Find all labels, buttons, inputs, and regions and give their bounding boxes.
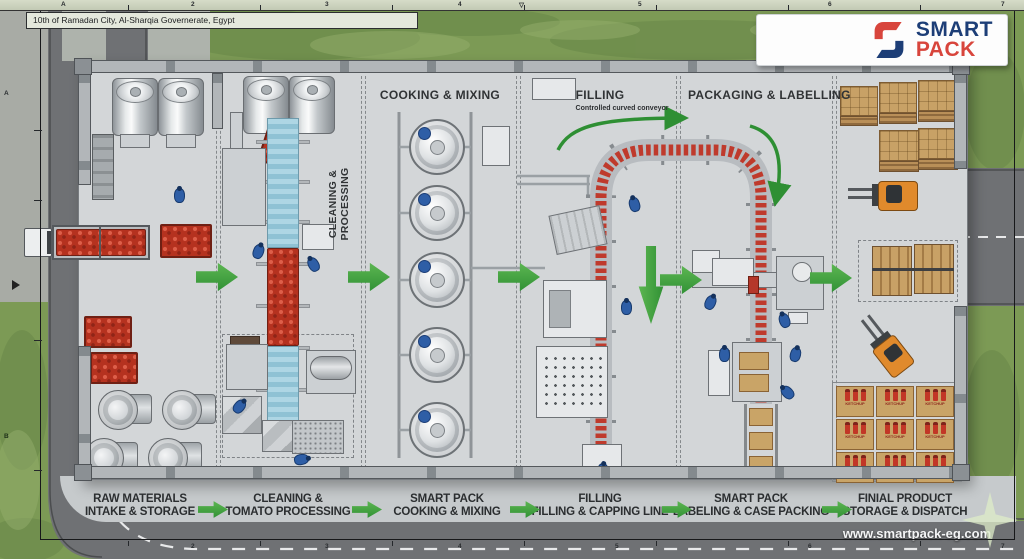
stage-line: TOMATO PROCESSING bbox=[208, 506, 368, 519]
truck-tomato-load bbox=[56, 229, 146, 256]
control-panel bbox=[482, 126, 510, 166]
ketchup-carton: KETCHUP bbox=[916, 386, 954, 417]
case-box bbox=[749, 432, 773, 450]
stage-line: COOKING & MIXING bbox=[372, 506, 522, 519]
stage-line: STORAGE & DISPATCH bbox=[827, 506, 983, 519]
ruler-tick bbox=[392, 5, 393, 10]
control-cabinet bbox=[92, 134, 114, 200]
ruler-tick bbox=[392, 541, 393, 546]
tomato-flow bbox=[267, 248, 299, 346]
logo-wordmark: SMART PACK bbox=[916, 20, 993, 60]
ruler-tick bbox=[260, 5, 261, 10]
address-plate: 10th of Ramadan City, Al-Sharqia Governe… bbox=[26, 12, 418, 29]
case-box bbox=[739, 374, 769, 392]
stage-line: INTAKE & STORAGE bbox=[65, 506, 215, 519]
ruler-label: 5 bbox=[638, 1, 642, 8]
building-wall-right bbox=[954, 73, 967, 169]
stage-line: FILLING & CAPPING LINE bbox=[515, 506, 685, 519]
entry-arrow-icon bbox=[12, 280, 20, 290]
corner-pillar bbox=[74, 58, 92, 75]
forklift-fork bbox=[848, 188, 874, 191]
trailer-divider bbox=[99, 227, 101, 258]
building-wall-right bbox=[954, 306, 967, 466]
mesh-machine bbox=[292, 420, 344, 454]
hopper-machine bbox=[226, 344, 268, 390]
storage-tank bbox=[112, 78, 158, 136]
pallet-strap bbox=[872, 268, 954, 271]
smartpack-logo-icon bbox=[871, 19, 907, 61]
labeler-foot bbox=[788, 312, 808, 324]
ruler-label: 6 bbox=[828, 1, 832, 8]
ruler-tick bbox=[524, 5, 525, 10]
building-wall-bottom bbox=[78, 466, 968, 479]
ketchup-carton: KETCHUP bbox=[876, 419, 914, 450]
filler-panel bbox=[549, 290, 571, 328]
pallet-stack bbox=[879, 130, 919, 176]
ruler-marker: ▽ bbox=[519, 1, 524, 9]
ruler-label: 6 bbox=[808, 543, 812, 550]
tomato-bin bbox=[84, 316, 132, 348]
corner-pillar bbox=[952, 464, 970, 481]
tank-stand bbox=[166, 134, 196, 148]
ruler-tick bbox=[656, 5, 657, 10]
website-url: www.smartpack-eg.com bbox=[832, 526, 1002, 541]
stage-label: FILLINGFILLING & CAPPING LINE bbox=[515, 493, 685, 518]
ketchup-carton: KETCHUP bbox=[916, 419, 954, 450]
stage-line: SMART PACK bbox=[661, 493, 841, 506]
cleaning-label-line2: PROCESSING bbox=[339, 144, 351, 264]
forklift-cab bbox=[886, 185, 902, 203]
cooking-kettle bbox=[409, 402, 465, 458]
ruler-label: 5 bbox=[615, 543, 619, 550]
cabinet-buttons bbox=[542, 354, 602, 410]
conveyor-annotation: Controlled curved conveyor bbox=[552, 105, 692, 112]
zone-label-cooking: COOKING & MIXING bbox=[370, 88, 510, 102]
cooking-kettle bbox=[409, 327, 465, 383]
stage-line: CLEANING & bbox=[208, 493, 368, 506]
cooking-kettle bbox=[409, 252, 465, 308]
stage-label: SMART PACKCOOKING & MIXING bbox=[372, 493, 522, 518]
ruler-tick bbox=[34, 470, 42, 471]
horizontal-tank bbox=[98, 390, 138, 430]
ruler-label: 3 bbox=[325, 1, 329, 8]
ruler-label: 2 bbox=[191, 1, 195, 8]
ruler-label: 4 bbox=[458, 1, 462, 8]
ruler-tick bbox=[788, 5, 789, 10]
ruler-tick bbox=[34, 130, 42, 131]
ruler-label: A bbox=[4, 90, 9, 97]
tomato-bin bbox=[90, 352, 138, 384]
truck-windshield bbox=[47, 231, 51, 254]
ruler-tick bbox=[920, 5, 921, 10]
logo-card: SMART PACK bbox=[756, 14, 1008, 66]
ruler-tick bbox=[34, 340, 42, 341]
stage-line: RAW MATERIALS bbox=[65, 493, 215, 506]
ruler-label: B bbox=[4, 433, 9, 440]
case-box bbox=[749, 408, 773, 426]
ruler-tick bbox=[34, 200, 42, 201]
ruler-tick bbox=[260, 541, 261, 546]
cooking-kettle bbox=[409, 185, 465, 241]
stage-label: SMART PACKLABELING & CASE PACKING bbox=[661, 493, 841, 518]
ketchup-carton: KETCHUP bbox=[836, 386, 874, 417]
ruler-label: 7 bbox=[1001, 1, 1005, 8]
logo-word-pack: PACK bbox=[916, 40, 993, 60]
stage-line: SMART PACK bbox=[372, 493, 522, 506]
labeler-reel bbox=[792, 262, 812, 282]
ketchup-carton: KETCHUP bbox=[836, 419, 874, 450]
worker bbox=[174, 188, 185, 203]
labeler-red-unit bbox=[748, 276, 759, 294]
ruler-label: 7 bbox=[1001, 543, 1005, 550]
forklift-fork bbox=[848, 196, 874, 199]
case-box bbox=[739, 352, 769, 370]
factory-layout-illustration: KETCHUP KETCHUP KETCHUP KETCHUP KETCHUP … bbox=[0, 0, 1024, 559]
ruler-tick bbox=[524, 541, 525, 546]
ruler-label: 4 bbox=[458, 543, 462, 550]
tomato-bin bbox=[160, 224, 212, 258]
tank-stand bbox=[120, 134, 150, 148]
zone-label-packaging: PACKAGING & LABELLING bbox=[688, 88, 828, 102]
ruler-label: 2 bbox=[191, 543, 195, 550]
wash-flume-conveyor bbox=[267, 346, 299, 426]
storage-tank bbox=[158, 78, 204, 136]
building-wall-left bbox=[78, 346, 91, 466]
washer-drum bbox=[310, 356, 352, 380]
elevator-machine bbox=[222, 148, 266, 226]
ketchup-carton: KETCHUP bbox=[876, 386, 914, 417]
ruler-tick bbox=[128, 5, 129, 10]
building-wall-left bbox=[78, 73, 91, 185]
pallet-stack bbox=[918, 128, 958, 174]
wash-flume-conveyor bbox=[267, 118, 299, 248]
ruler-tick bbox=[656, 541, 657, 546]
case-packer bbox=[732, 342, 782, 402]
logo-word-smart: SMART bbox=[916, 20, 993, 40]
staging-pallet bbox=[872, 246, 912, 296]
stage-line: FILLING bbox=[515, 493, 685, 506]
horizontal-tank bbox=[162, 390, 202, 430]
corner-pillar bbox=[74, 464, 92, 481]
stage-label: FINIAL PRODUCTSTORAGE & DISPATCH bbox=[827, 493, 983, 518]
cooking-kettle bbox=[409, 119, 465, 175]
top-ruler bbox=[0, 0, 1024, 11]
stage-label: CLEANING &TOMATO PROCESSING bbox=[208, 493, 368, 518]
zone-label-filling: FILLING bbox=[558, 88, 642, 102]
pallet-stack bbox=[918, 80, 956, 126]
zone-label-cleaning: CLEANING & PROCESSING bbox=[327, 144, 355, 264]
cleaning-label-line1: CLEANING & bbox=[327, 144, 339, 264]
partition-wall bbox=[212, 73, 223, 129]
ruler-tick bbox=[920, 541, 921, 546]
pallet-stack bbox=[879, 82, 917, 128]
ruler-label: 3 bbox=[325, 543, 329, 550]
stage-label: RAW MATERIALSINTAKE & STORAGE bbox=[65, 493, 215, 518]
ruler-label: A bbox=[61, 1, 66, 8]
ruler-tick bbox=[788, 541, 789, 546]
worker bbox=[621, 300, 632, 315]
stage-line: FINIAL PRODUCT bbox=[827, 493, 983, 506]
worker bbox=[719, 347, 730, 362]
ruler-tick bbox=[128, 541, 129, 546]
